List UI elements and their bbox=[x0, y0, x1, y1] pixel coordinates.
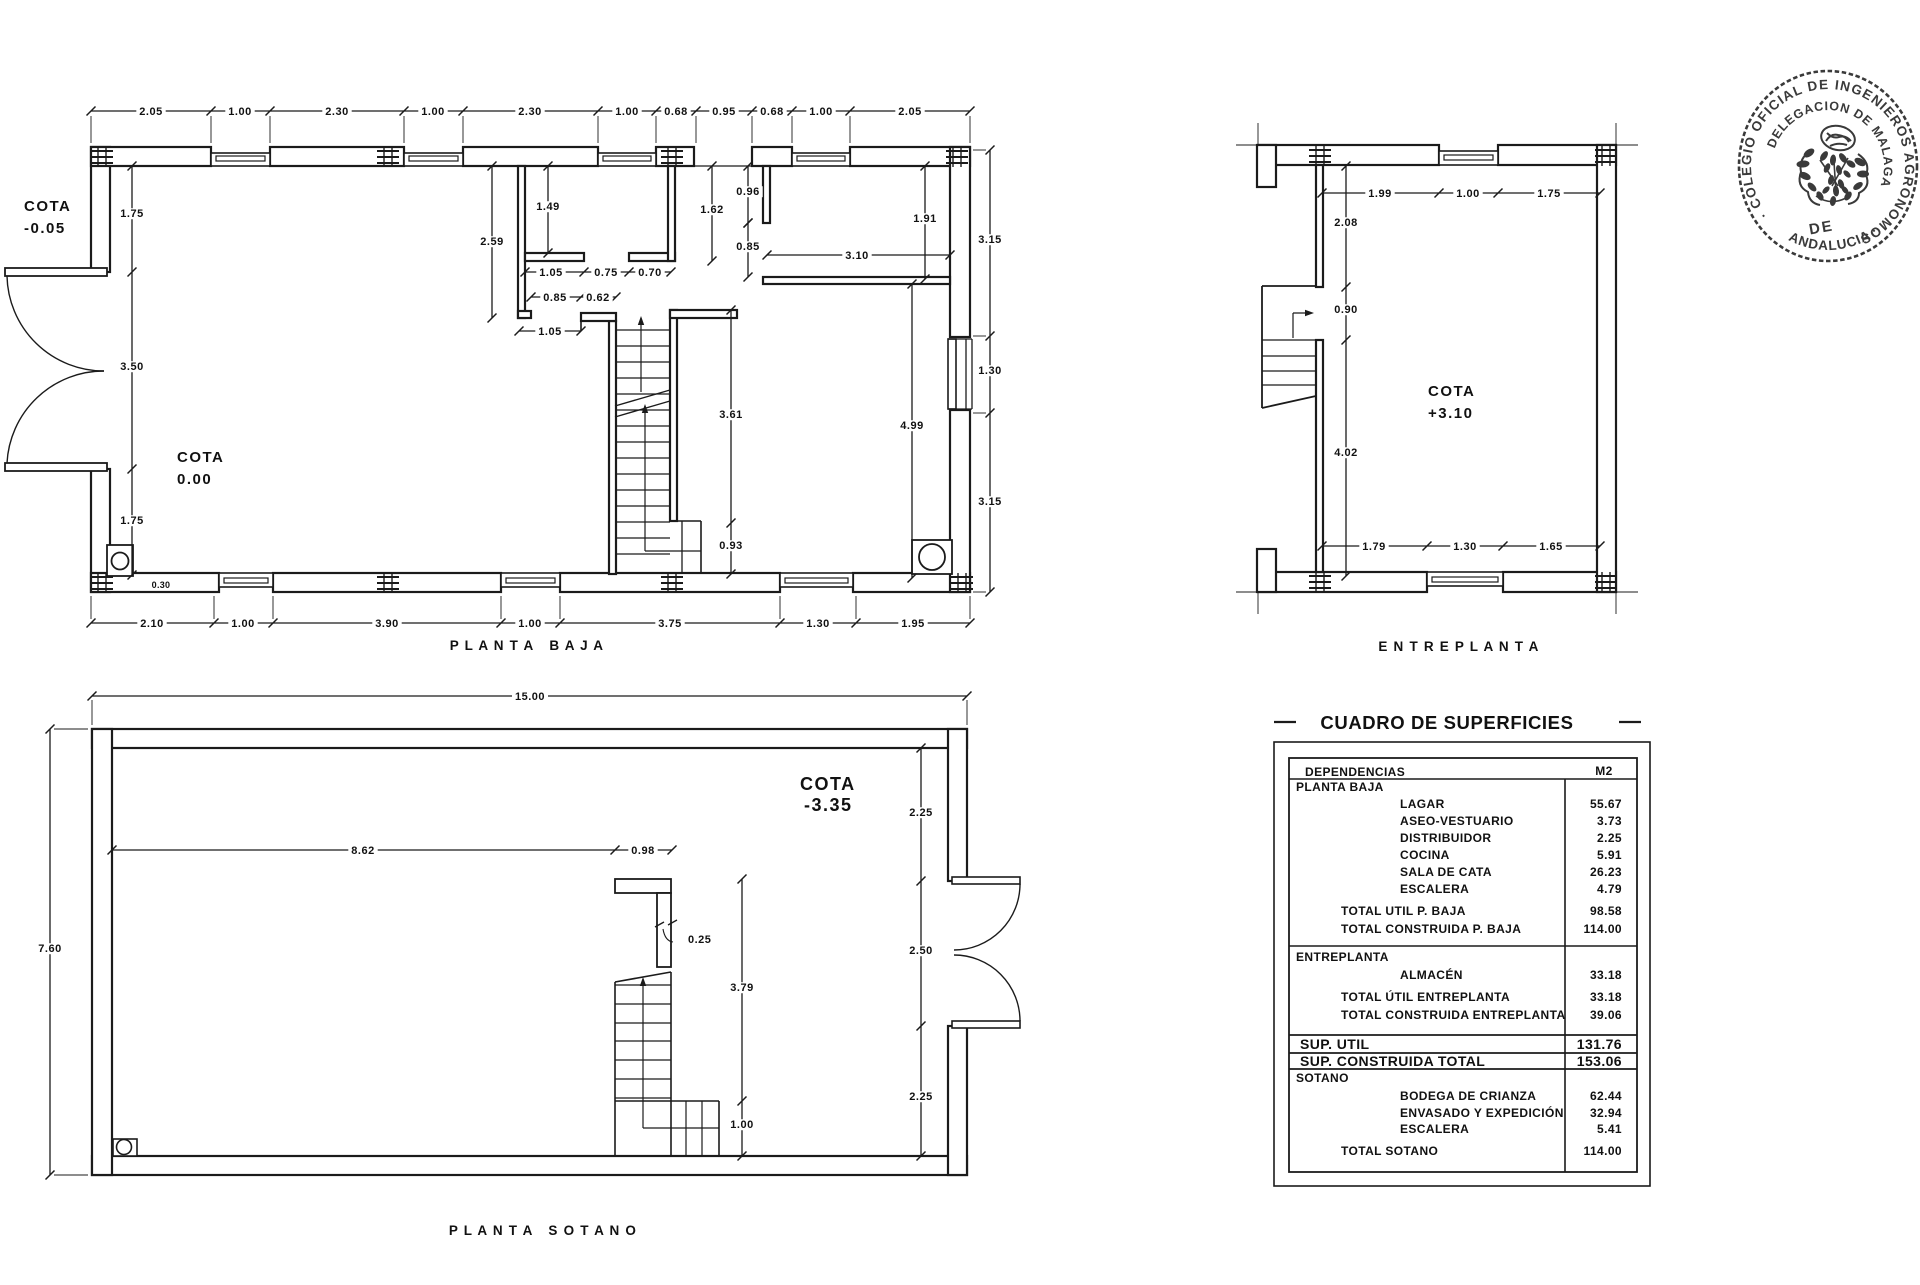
svg-text:0.25: 0.25 bbox=[688, 934, 711, 946]
svg-text:1.00: 1.00 bbox=[809, 106, 832, 118]
svg-text:E N T R E P L A N T A: E N T R E P L A N T A bbox=[1378, 639, 1539, 654]
svg-text:5.91: 5.91 bbox=[1597, 848, 1622, 862]
svg-text:2.05: 2.05 bbox=[139, 106, 162, 118]
svg-text:1.00: 1.00 bbox=[518, 618, 541, 630]
svg-text:ENTREPLANTA: ENTREPLANTA bbox=[1296, 950, 1389, 964]
svg-text:2.08: 2.08 bbox=[1334, 217, 1357, 229]
svg-text:1.75: 1.75 bbox=[120, 515, 143, 527]
svg-text:5.41: 5.41 bbox=[1597, 1122, 1622, 1136]
svg-text:COTA: COTA bbox=[177, 449, 224, 466]
svg-text:DISTRIBUIDOR: DISTRIBUIDOR bbox=[1400, 831, 1491, 845]
svg-text:0.70: 0.70 bbox=[638, 267, 661, 279]
svg-text:0.95: 0.95 bbox=[712, 106, 735, 118]
svg-text:2.25: 2.25 bbox=[909, 807, 932, 819]
svg-text:0.85: 0.85 bbox=[543, 292, 566, 304]
svg-text:1.30: 1.30 bbox=[806, 618, 829, 630]
svg-text:TOTAL CONSTRUIDA P. BAJA: TOTAL CONSTRUIDA P. BAJA bbox=[1341, 922, 1521, 936]
svg-text:33.18: 33.18 bbox=[1590, 968, 1622, 982]
svg-text:ESCALERA: ESCALERA bbox=[1400, 1122, 1469, 1136]
svg-text:M2: M2 bbox=[1595, 764, 1612, 778]
svg-text:0.96: 0.96 bbox=[736, 186, 759, 198]
svg-text:8.62: 8.62 bbox=[351, 845, 374, 857]
svg-text:2.05: 2.05 bbox=[898, 106, 921, 118]
svg-text:1.95: 1.95 bbox=[901, 618, 924, 630]
svg-text:2.10: 2.10 bbox=[140, 618, 163, 630]
svg-text:114.00: 114.00 bbox=[1584, 1144, 1622, 1158]
svg-text:BODEGA DE CRIANZA: BODEGA DE CRIANZA bbox=[1400, 1089, 1536, 1103]
svg-text:TOTAL ÚTIL ENTREPLANTA: TOTAL ÚTIL ENTREPLANTA bbox=[1341, 989, 1510, 1004]
svg-text:DEPENDENCIAS: DEPENDENCIAS bbox=[1305, 765, 1405, 779]
svg-text:1.00: 1.00 bbox=[421, 106, 444, 118]
svg-text:P L A N T A B A J A: P L A N T A B A J A bbox=[450, 638, 604, 653]
svg-text:33.18: 33.18 bbox=[1590, 990, 1622, 1004]
svg-text:TOTAL CONSTRUIDA ENTREPLANTA: TOTAL CONSTRUIDA ENTREPLANTA bbox=[1341, 1008, 1566, 1022]
svg-text:COTA: COTA bbox=[24, 198, 71, 215]
svg-text:62.44: 62.44 bbox=[1590, 1089, 1622, 1103]
svg-text:26.23: 26.23 bbox=[1590, 865, 1622, 879]
svg-text:1.49: 1.49 bbox=[536, 201, 559, 213]
svg-text:131.76: 131.76 bbox=[1577, 1036, 1622, 1052]
svg-text:0.85: 0.85 bbox=[736, 241, 759, 253]
svg-text:1.00: 1.00 bbox=[615, 106, 638, 118]
svg-text:2.50: 2.50 bbox=[909, 945, 932, 957]
svg-text:1.75: 1.75 bbox=[120, 208, 143, 220]
svg-text:SOTANO: SOTANO bbox=[1296, 1071, 1349, 1085]
svg-text:P L A N T A S O T A N O: P L A N T A S O T A N O bbox=[449, 1223, 637, 1238]
svg-text:2.30: 2.30 bbox=[518, 106, 541, 118]
svg-text:2.30: 2.30 bbox=[325, 106, 348, 118]
svg-text:0.62: 0.62 bbox=[586, 292, 609, 304]
svg-text:-3.35: -3.35 bbox=[804, 795, 853, 815]
svg-text:0.90: 0.90 bbox=[1334, 304, 1357, 316]
svg-text:1.05: 1.05 bbox=[539, 267, 562, 279]
svg-text:39.06: 39.06 bbox=[1590, 1008, 1622, 1022]
svg-text:0.00: 0.00 bbox=[177, 471, 212, 488]
svg-text:CUADRO DE SUPERFICIES: CUADRO DE SUPERFICIES bbox=[1320, 712, 1573, 733]
svg-text:3.15: 3.15 bbox=[978, 496, 1001, 508]
svg-text:0.68: 0.68 bbox=[664, 106, 687, 118]
svg-text:0.75: 0.75 bbox=[594, 267, 617, 279]
svg-text:3.15: 3.15 bbox=[978, 234, 1001, 246]
svg-text:1.30: 1.30 bbox=[978, 365, 1001, 377]
svg-text:1.99: 1.99 bbox=[1368, 188, 1391, 200]
svg-text:1.62: 1.62 bbox=[700, 204, 723, 216]
svg-text:0.98: 0.98 bbox=[631, 845, 654, 857]
svg-text:0.93: 0.93 bbox=[719, 540, 742, 552]
svg-text:2.59: 2.59 bbox=[480, 236, 503, 248]
svg-text:COTA: COTA bbox=[800, 774, 856, 794]
svg-text:4.02: 4.02 bbox=[1334, 447, 1357, 459]
svg-text:1.79: 1.79 bbox=[1362, 541, 1385, 553]
svg-text:COTA: COTA bbox=[1428, 383, 1475, 400]
svg-text:0.30: 0.30 bbox=[152, 580, 171, 590]
svg-text:SUP. UTIL: SUP. UTIL bbox=[1300, 1036, 1370, 1052]
svg-text:ENVASADO Y EXPEDICIÓN: ENVASADO Y EXPEDICIÓN bbox=[1400, 1105, 1564, 1120]
svg-text:SUP. CONSTRUIDA TOTAL: SUP. CONSTRUIDA TOTAL bbox=[1300, 1053, 1485, 1069]
svg-text:3.90: 3.90 bbox=[375, 618, 398, 630]
svg-text:ASEO-VESTUARIO: ASEO-VESTUARIO bbox=[1400, 814, 1514, 828]
svg-text:+3.10: +3.10 bbox=[1428, 405, 1473, 422]
svg-text:3.50: 3.50 bbox=[120, 361, 143, 373]
svg-text:LAGAR: LAGAR bbox=[1400, 797, 1445, 811]
svg-text:1.00: 1.00 bbox=[730, 1119, 753, 1131]
svg-text:ALMACÉN: ALMACÉN bbox=[1400, 967, 1463, 982]
svg-text:1.05: 1.05 bbox=[538, 326, 561, 338]
svg-text:TOTAL UTIL P. BAJA: TOTAL UTIL P. BAJA bbox=[1341, 904, 1466, 918]
svg-text:SALA DE CATA: SALA DE CATA bbox=[1400, 865, 1492, 879]
svg-text:COCINA: COCINA bbox=[1400, 848, 1450, 862]
svg-text:3.73: 3.73 bbox=[1597, 814, 1622, 828]
svg-text:ESCALERA: ESCALERA bbox=[1400, 882, 1469, 896]
svg-text:1.00: 1.00 bbox=[228, 106, 251, 118]
svg-text:1.75: 1.75 bbox=[1537, 188, 1560, 200]
svg-text:2.25: 2.25 bbox=[909, 1091, 932, 1103]
svg-text:3.10: 3.10 bbox=[845, 250, 868, 262]
svg-text:1.00: 1.00 bbox=[231, 618, 254, 630]
svg-text:1.30: 1.30 bbox=[1453, 541, 1476, 553]
svg-text:4.79: 4.79 bbox=[1597, 882, 1622, 896]
svg-text:0.68: 0.68 bbox=[760, 106, 783, 118]
svg-text:55.67: 55.67 bbox=[1590, 797, 1622, 811]
svg-text:153.06: 153.06 bbox=[1577, 1053, 1622, 1069]
svg-text:2.25: 2.25 bbox=[1597, 831, 1622, 845]
svg-text:1.00: 1.00 bbox=[1456, 188, 1479, 200]
svg-text:TOTAL SOTANO: TOTAL SOTANO bbox=[1341, 1144, 1438, 1158]
svg-text:98.58: 98.58 bbox=[1590, 904, 1622, 918]
svg-text:3.61: 3.61 bbox=[719, 409, 742, 421]
svg-text:32.94: 32.94 bbox=[1590, 1106, 1622, 1120]
svg-text:4.99: 4.99 bbox=[900, 420, 923, 432]
svg-text:7.60: 7.60 bbox=[38, 943, 61, 955]
svg-text:15.00: 15.00 bbox=[515, 691, 545, 703]
svg-text:PLANTA BAJA: PLANTA BAJA bbox=[1296, 780, 1384, 794]
svg-text:3.75: 3.75 bbox=[658, 618, 681, 630]
svg-text:-0.05: -0.05 bbox=[24, 220, 66, 237]
svg-text:1.65: 1.65 bbox=[1539, 541, 1562, 553]
svg-text:114.00: 114.00 bbox=[1584, 922, 1622, 936]
svg-text:1.91: 1.91 bbox=[913, 213, 936, 225]
svg-text:3.79: 3.79 bbox=[730, 982, 753, 994]
